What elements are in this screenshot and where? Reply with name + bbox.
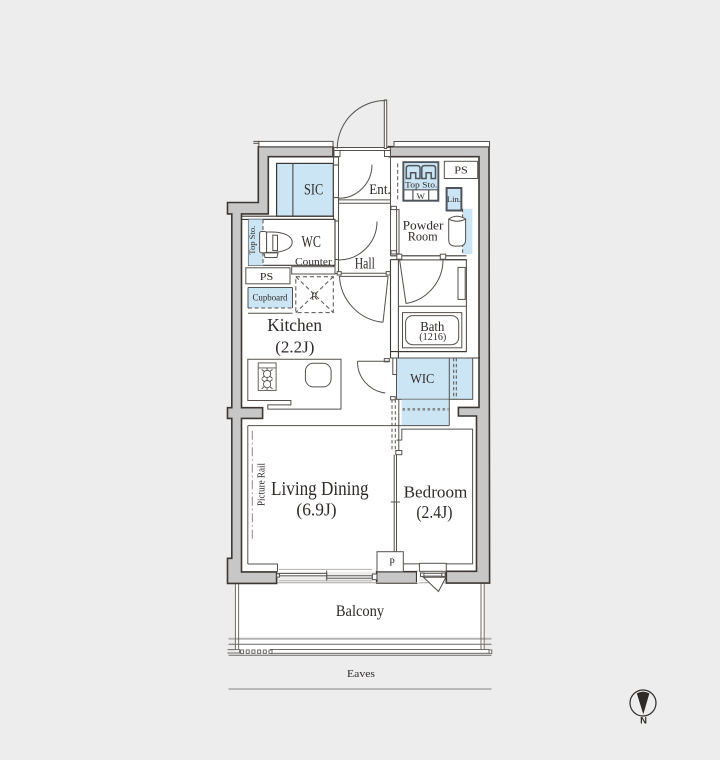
svg-text:PS: PS bbox=[260, 272, 274, 283]
svg-text:Balcony: Balcony bbox=[336, 603, 384, 620]
svg-text:(1216): (1216) bbox=[419, 332, 446, 343]
svg-text:Lin.: Lin. bbox=[447, 194, 461, 204]
svg-text:Bedroom: Bedroom bbox=[404, 482, 468, 501]
svg-text:(2.2J): (2.2J) bbox=[275, 337, 314, 356]
svg-text:Eaves: Eaves bbox=[347, 669, 375, 680]
svg-text:Picture Rail: Picture Rail bbox=[257, 463, 268, 506]
svg-text:(6.9J): (6.9J) bbox=[296, 500, 336, 520]
svg-text:Top Sto.: Top Sto. bbox=[405, 179, 437, 189]
svg-text:N: N bbox=[640, 716, 647, 727]
svg-text:PS: PS bbox=[454, 166, 468, 177]
svg-text:P: P bbox=[389, 558, 395, 569]
svg-text:Top Sto.: Top Sto. bbox=[248, 226, 257, 255]
svg-text:R: R bbox=[311, 291, 318, 302]
svg-text:Cupboard: Cupboard bbox=[253, 294, 288, 304]
svg-text:Ent.: Ent. bbox=[369, 182, 391, 198]
svg-text:SIC: SIC bbox=[304, 182, 323, 199]
svg-text:(2.4J): (2.4J) bbox=[416, 502, 452, 522]
svg-text:Living Dining: Living Dining bbox=[271, 478, 369, 500]
svg-text:Hall: Hall bbox=[355, 256, 375, 273]
svg-text:WIC: WIC bbox=[410, 372, 434, 387]
svg-text:W: W bbox=[417, 191, 426, 201]
svg-text:Kitchen: Kitchen bbox=[267, 315, 322, 335]
svg-text:WC: WC bbox=[302, 232, 321, 251]
svg-text:Room: Room bbox=[408, 230, 438, 244]
